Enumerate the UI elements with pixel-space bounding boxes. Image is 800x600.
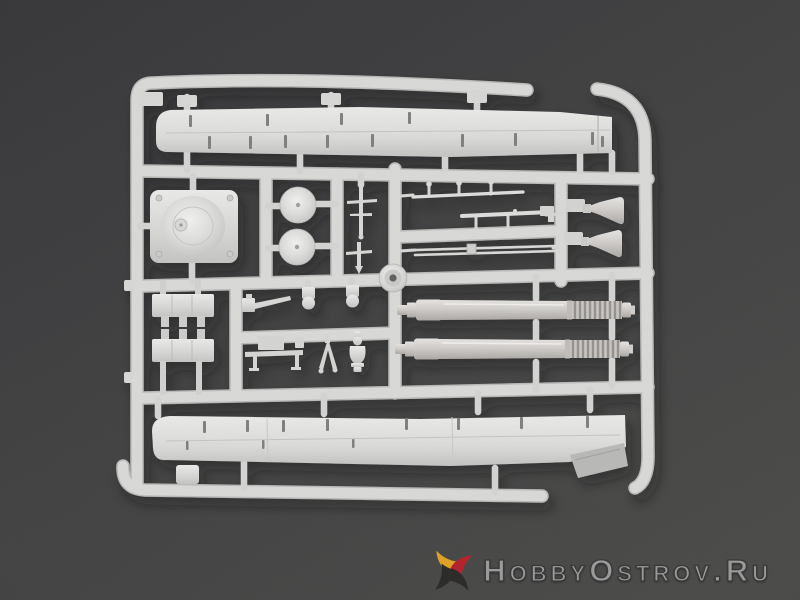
product-photo: HobbyOstrov.Ru <box>0 0 800 600</box>
star-logo-icon <box>428 543 476 597</box>
sprue-graphic <box>0 0 800 600</box>
photo-grain-overlay <box>0 0 800 600</box>
watermark-text: HobbyOstrov.Ru <box>483 555 772 586</box>
watermark: HobbyOstrov.Ru <box>428 544 772 596</box>
